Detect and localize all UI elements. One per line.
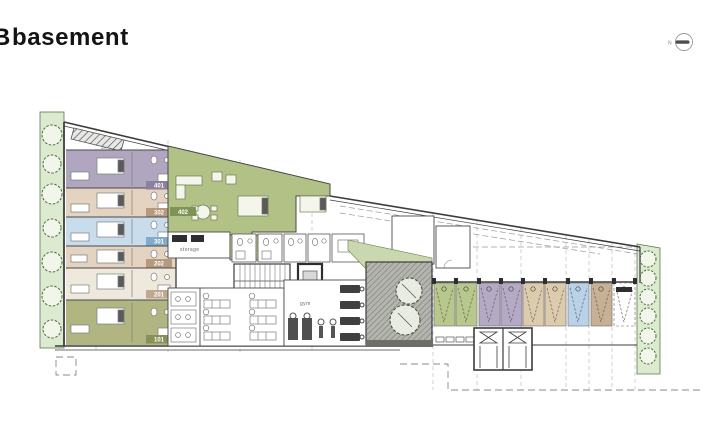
upper-floor-projection	[340, 206, 638, 254]
tree-icon	[42, 286, 62, 306]
tree-icon	[640, 308, 656, 324]
svg-text:302: 302	[154, 211, 165, 217]
svg-text:101: 101	[154, 338, 165, 344]
terrace	[366, 262, 433, 346]
vent-row	[436, 337, 474, 342]
gym-room: gym	[284, 280, 366, 346]
north-needle-icon	[676, 40, 690, 43]
svg-text:201: 201	[154, 293, 165, 299]
floorplan-drawing: N	[0, 0, 705, 444]
north-label: N	[668, 41, 672, 47]
tree-icon	[640, 328, 656, 344]
svg-text:402: 402	[178, 210, 189, 216]
badge-402: 402	[170, 207, 196, 216]
tree-icon	[43, 219, 61, 237]
tree-icon	[640, 251, 656, 267]
tree-icon	[43, 155, 61, 173]
svg-text:202: 202	[154, 262, 165, 268]
tree-icon	[42, 125, 62, 145]
gym-label: gym	[300, 301, 311, 307]
tree-icon	[42, 184, 62, 204]
coworking-lockers	[171, 292, 196, 342]
svg-text:301: 301	[154, 240, 165, 246]
badge-202: 202	[146, 259, 172, 268]
svg-text:401: 401	[154, 184, 165, 190]
apartment-402: 402	[168, 146, 330, 235]
tree-icon	[640, 348, 656, 364]
car-ramp	[474, 328, 532, 370]
bathroom-pods	[232, 234, 364, 262]
tree-icon	[42, 252, 62, 272]
tree-icon	[640, 270, 656, 286]
tree-icon	[640, 289, 656, 305]
north-indicator: N	[668, 34, 693, 51]
tree-icon	[43, 320, 61, 338]
storage-label: storage	[180, 247, 199, 253]
parking-area	[432, 278, 637, 345]
site-boundary	[56, 357, 703, 390]
